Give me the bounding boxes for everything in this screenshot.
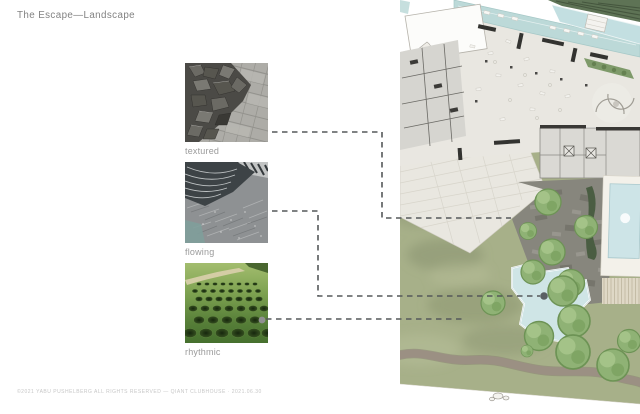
concept-figure-textured: textured (185, 63, 268, 156)
slide-canvas: The Escape—Landscape (0, 0, 640, 414)
concept-label: flowing (185, 247, 268, 257)
concept-label: rhythmic (185, 347, 268, 357)
concept-label: textured (185, 146, 268, 156)
flowing-thumbnail-image (185, 162, 268, 243)
rhythmic-thumbnail-image (185, 263, 268, 343)
concept-figure-rhythmic: rhythmic (185, 263, 268, 357)
page-title: The Escape—Landscape (17, 10, 135, 21)
footer-credit: ©2021 YABU PUSHELBERG ALL RIGHTS RESERVE… (17, 389, 262, 395)
textured-thumbnail-image (185, 63, 268, 142)
landscape-site-plan (400, 0, 640, 414)
concept-figure-flowing: flowing (185, 162, 268, 257)
